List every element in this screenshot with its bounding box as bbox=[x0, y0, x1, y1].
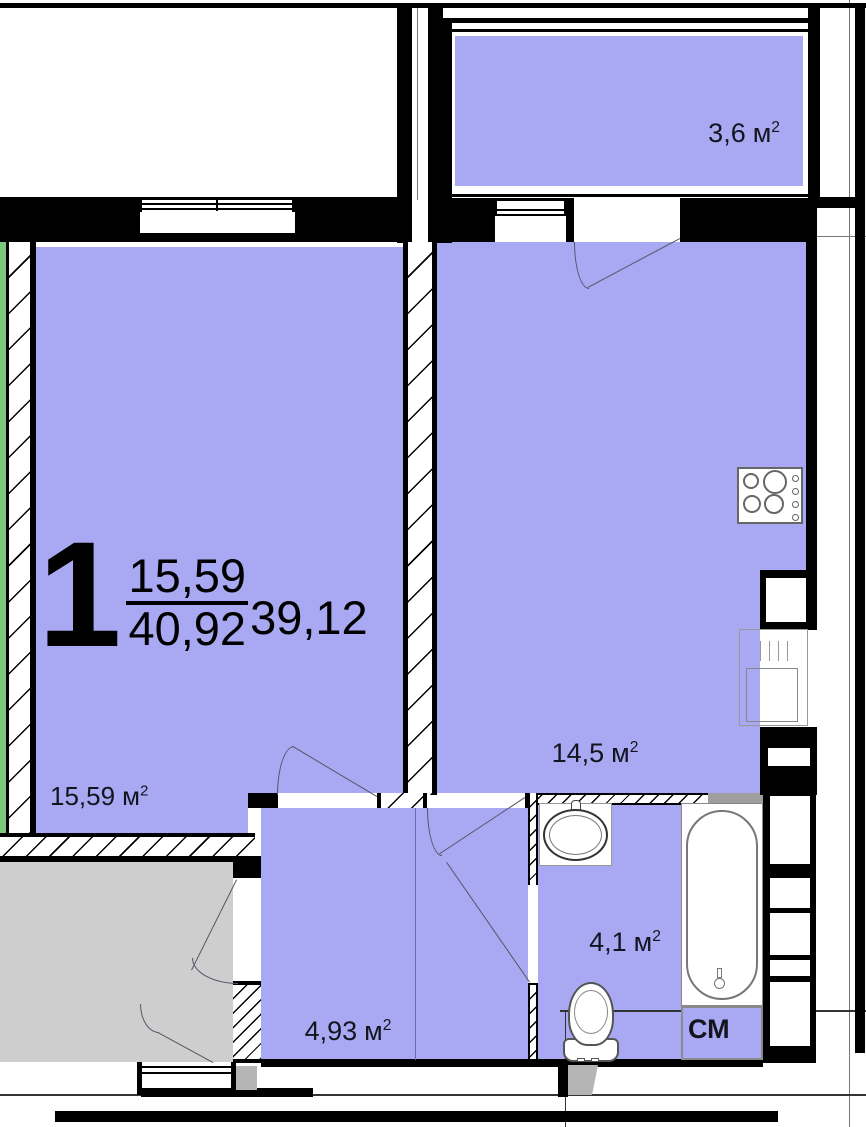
entry-wall-top bbox=[233, 856, 261, 878]
boiler-vent-line bbox=[787, 641, 788, 661]
stove-knob-icon bbox=[792, 488, 799, 495]
stove-burner-icon bbox=[743, 495, 761, 513]
kitchen-top-wall-mid bbox=[566, 198, 574, 242]
floor-plan: 3,6м2 15,59м2 14,5м2 4,93м2 4,1м2 СМ 1 1… bbox=[0, 0, 866, 1127]
shaft-niche bbox=[770, 796, 810, 864]
window-line bbox=[495, 209, 566, 211]
toilet-seat-icon bbox=[574, 990, 608, 1034]
shaft-niche bbox=[766, 578, 806, 622]
window-line bbox=[142, 1066, 232, 1068]
kitchen-top-wall-right bbox=[680, 198, 808, 242]
sink-basin-icon bbox=[549, 815, 602, 855]
shaft-niche bbox=[768, 748, 810, 766]
window-cap bbox=[292, 200, 295, 212]
bathtub-drain-stem bbox=[717, 968, 722, 978]
building-edge-line bbox=[0, 1094, 866, 1096]
apartment-bottom-wall bbox=[261, 1059, 763, 1067]
stove-knob-icon bbox=[792, 514, 799, 521]
balcony-right-wall bbox=[808, 8, 820, 208]
bottom-right-wall-vertical bbox=[810, 1006, 815, 1062]
balcony-railing-inner bbox=[452, 29, 808, 32]
shaft-niche bbox=[770, 878, 810, 908]
window-line bbox=[142, 1072, 232, 1074]
area-label-bathroom: 4,1м2 bbox=[575, 927, 675, 958]
stove-knob-icon bbox=[792, 475, 799, 482]
room-fill-kitchen-upper bbox=[437, 242, 806, 577]
window-cap bbox=[494, 200, 497, 216]
bathroom-area-value: 4,1 bbox=[589, 927, 627, 957]
right-column-wall bbox=[808, 197, 865, 208]
right-outer-wall bbox=[855, 3, 865, 1053]
kitchen-right-wall bbox=[806, 208, 817, 577]
bottom-wall-segment bbox=[141, 1088, 313, 1097]
balcony-area-unit: м bbox=[753, 118, 772, 148]
bathroom-area-exp: 2 bbox=[652, 928, 661, 945]
room-fill-balcony bbox=[455, 36, 803, 186]
grid-axis-line-vertical bbox=[849, 0, 850, 1127]
stove-burner-icon bbox=[764, 494, 784, 514]
bottom-outer-wall bbox=[55, 1111, 778, 1122]
kitchen-top-wall-left bbox=[440, 198, 495, 242]
living-area-exp: 2 bbox=[140, 782, 148, 799]
stove-burner-icon bbox=[743, 473, 759, 489]
shaft-niche bbox=[770, 982, 810, 1046]
bottom-right-wall bbox=[766, 1050, 812, 1062]
partition-wall-living-kitchen bbox=[403, 242, 437, 795]
living-area-value: 15,59 bbox=[50, 781, 115, 811]
title-rooms-count: 1 bbox=[38, 536, 121, 653]
stove-knob-icon bbox=[792, 501, 799, 508]
corridor-wall-edge bbox=[0, 856, 255, 862]
boiler-vent-line bbox=[769, 641, 770, 661]
bathtub-drain-icon bbox=[714, 978, 725, 989]
hallway-wall-block bbox=[377, 793, 427, 808]
window-mullion bbox=[216, 200, 218, 211]
bathroom-left-wall-upper bbox=[528, 793, 538, 885]
bathroom-area-unit: м bbox=[634, 927, 653, 957]
kitchen-area-value: 14,5 bbox=[552, 738, 605, 768]
balcony-area-value: 3,6 bbox=[708, 118, 746, 148]
living-area-unit: м bbox=[122, 781, 140, 811]
window-opening-kitchen bbox=[495, 198, 566, 242]
balcony-railing-outer bbox=[440, 18, 820, 23]
corridor-top-wall bbox=[0, 837, 255, 856]
hallway-area-value: 4,93 bbox=[305, 1016, 358, 1046]
kitchen-area-exp: 2 bbox=[630, 739, 639, 756]
toilet-button-icon bbox=[591, 1058, 599, 1062]
area-label-hallway: 4,93м2 bbox=[293, 1016, 403, 1047]
area-label-balcony: 3,6м2 bbox=[680, 118, 780, 149]
entry-wall-bottom bbox=[233, 981, 261, 1063]
door-threshold bbox=[568, 1065, 598, 1095]
threshold-wall bbox=[558, 1063, 568, 1097]
door-threshold bbox=[236, 1066, 257, 1090]
bathtub-icon bbox=[686, 810, 758, 1000]
window-line bbox=[495, 214, 566, 216]
shaft-niche bbox=[770, 913, 810, 955]
bathroom-left-wall-lower bbox=[528, 983, 538, 1063]
hallway-wall-corner bbox=[248, 793, 278, 808]
title-reduced-area: 39,12 bbox=[250, 594, 368, 641]
stove-burner-icon bbox=[763, 470, 787, 494]
window-edge bbox=[495, 198, 566, 201]
boiler-body-icon bbox=[746, 668, 798, 722]
neighbor-room-right-wall bbox=[397, 3, 412, 243]
left-wall-inner-edge bbox=[30, 242, 36, 862]
window-cap bbox=[139, 200, 142, 212]
apartment-title-block: 1 15,59 40,92 39,12 bbox=[38, 536, 368, 653]
left-exterior-wall bbox=[9, 242, 30, 862]
boiler-vent-line bbox=[778, 641, 779, 661]
balcony-floor-edge bbox=[452, 194, 808, 197]
washing-machine-label: СМ bbox=[688, 1014, 730, 1045]
shaft-niche bbox=[770, 960, 810, 976]
hallway-area-exp: 2 bbox=[383, 1017, 392, 1034]
hallway-area-unit: м bbox=[364, 1016, 383, 1046]
title-area-fraction: 15,59 40,92 bbox=[126, 552, 248, 653]
boiler-vent-line bbox=[760, 641, 761, 661]
balcony-area-exp: 2 bbox=[771, 119, 780, 136]
title-total-area: 40,92 bbox=[126, 605, 248, 653]
kitchen-area-unit: м bbox=[611, 738, 630, 768]
hallway-step-line bbox=[415, 808, 416, 1060]
column-center-line bbox=[417, 3, 418, 200]
area-label-kitchen: 14,5м2 bbox=[540, 738, 650, 769]
title-living-area: 15,59 bbox=[126, 552, 248, 605]
area-label-living: 15,59м2 bbox=[50, 781, 148, 812]
toilet-button-icon bbox=[577, 1058, 585, 1062]
